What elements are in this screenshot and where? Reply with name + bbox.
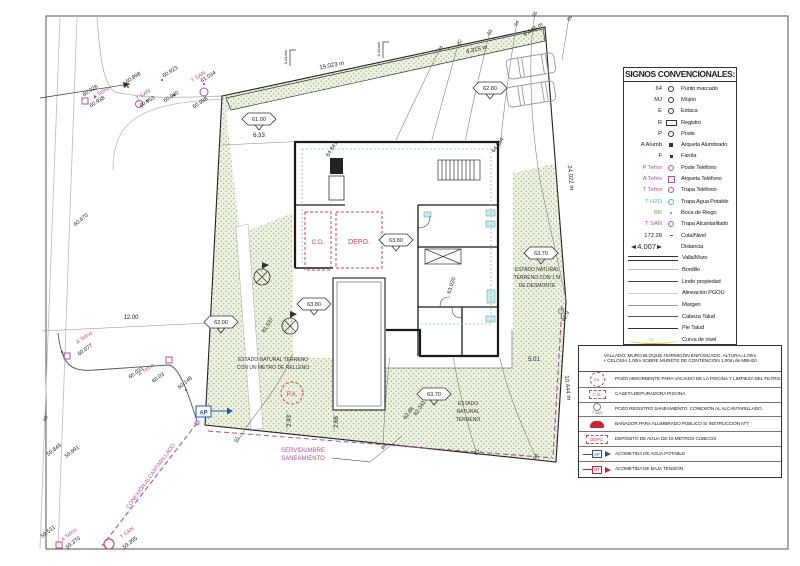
core-element	[330, 158, 343, 174]
notes-row: BAÑADOR PARA ALUMBRADO PÚBLICO S/ INSTRU…	[579, 417, 781, 432]
legend-row: P Tefno Poste Teléfono	[624, 162, 736, 173]
legend-row: BR Boca de Riego	[624, 207, 736, 218]
svg-text:CON UN METRO DE RELLENO: CON UN METRO DE RELLENO	[237, 365, 309, 371]
site-plan-sheet: { "legend": { "title": "SIGNOS CONVENCIO…	[0, 0, 800, 566]
svg-text:A Tefno: A Tefno	[137, 362, 155, 377]
arrow-right-icon	[657, 245, 662, 249]
svg-text:A Alumb: A Alumb	[376, 41, 381, 56]
legend-row: T H2O Trapa Agua Potable	[624, 196, 736, 207]
svg-text:10.444 m: 10.444 m	[563, 375, 572, 401]
svg-text:65: 65	[531, 10, 539, 18]
post-icon	[668, 131, 674, 137]
legend-row: 172.28 Cota/Nivel	[624, 230, 736, 241]
streetlight-icon	[670, 155, 673, 158]
core-outline	[329, 176, 344, 200]
water-supply-icon: AP	[583, 450, 612, 458]
svg-text:C.D.: C.D.	[312, 239, 325, 246]
svg-text:CONEXIÓN ALCANTARILLADO: CONEXIÓN ALCANTARILLADO	[125, 441, 178, 510]
slope-top-line-icon	[628, 316, 678, 317]
tsan-well-icon: T SAN	[592, 403, 602, 415]
svg-text:63.80: 63.80	[389, 238, 403, 244]
contour-line-icon: 53	[628, 336, 678, 344]
svg-text:60.898: 60.898	[125, 71, 142, 85]
svg-text:63.70: 63.70	[427, 392, 441, 398]
survey-dots	[61, 79, 205, 391]
building-footprint	[293, 140, 500, 358]
svg-text:64: 64	[513, 19, 521, 27]
pa-well-icon: P.A.	[590, 372, 605, 387]
svg-text:60: 60	[42, 415, 50, 422]
svg-text:62.00: 62.00	[214, 320, 228, 326]
svg-text:60.923: 60.923	[162, 65, 179, 79]
legend-row: E Estaca	[624, 106, 736, 117]
level-icon	[670, 235, 673, 236]
svg-text:ESTADO NATURAL TERRENO: ESTADO NATURAL TERRENO	[238, 357, 308, 363]
depo-box-icon: DEPO.	[586, 435, 608, 444]
notes-row: AP ACOMETIDA DE AGUA POTABLE	[579, 447, 781, 462]
svg-text:TERRENO CON 1 M: TERRENO CON 1 M	[514, 275, 561, 281]
legend-row: A Alumb Arqueta Alumbrado	[624, 139, 736, 150]
legend-line-row: Margen	[624, 299, 736, 311]
svg-text:60.670: 60.670	[73, 213, 90, 228]
svg-text:61: 61	[233, 435, 241, 443]
svg-text:ESTADO NATURAL: ESTADO NATURAL	[515, 267, 560, 273]
notes-row: C.D. CASETA DEPURADORA PISCINA	[579, 388, 781, 403]
margin-line-icon	[628, 305, 678, 306]
svg-text:SANEAMIENTO: SANEAMIENTO	[281, 456, 325, 462]
registro-icon	[666, 120, 677, 126]
svg-text:62.80: 62.80	[483, 86, 497, 92]
phone-manhole-icon	[668, 187, 674, 193]
legend-box: SIGNOS CONVENCIONALES: 64 Punto marcado …	[623, 67, 737, 345]
notes-row: BT ACOMETIDA DE BAJA TENSIÓN	[579, 462, 781, 477]
svg-text:DE DESMONTE: DE DESMONTE	[519, 283, 556, 289]
legend-line-row: Alineación PGOU	[624, 288, 736, 300]
phone-post-icon	[668, 165, 674, 171]
curb-line-icon	[628, 269, 678, 270]
legend-line-row: Bordillo	[624, 264, 736, 276]
svg-text:5.01: 5.01	[528, 357, 540, 363]
svg-text:2.43: 2.43	[287, 415, 293, 427]
curb-line	[58, 333, 197, 421]
notes-header: VALLADO: MURO BLOQUE HORMIGÓN ENFOSCADO.…	[579, 346, 781, 372]
hydrant-icon	[670, 212, 672, 214]
legend-row: F Farola	[624, 151, 736, 162]
svg-text:DEPO.: DEPO.	[348, 239, 370, 246]
svg-text:24.022 m: 24.022 m	[566, 165, 575, 191]
road-lines	[40, 16, 224, 549]
legend-row: 64 Punto marcado	[624, 83, 736, 94]
svg-text:SERVIDUMBRE: SERVIDUMBRE	[281, 448, 325, 454]
lighting-box-icon	[669, 143, 673, 147]
point-icon	[668, 86, 674, 92]
svg-text:ESTADO: ESTADO	[458, 401, 478, 407]
notes-row: T SAN POZO REGISTRO SANEAMIENTO. CONEXIÓ…	[579, 403, 781, 418]
power-supply-icon: BT	[583, 466, 611, 474]
svg-text:P.A.: P.A.	[287, 392, 298, 398]
notes-row: DEPO. DEPÓSITO DE AGUA DE 15 METROS CÚBI…	[579, 432, 781, 447]
legend-row: T Tefno Trapa Teléfono	[624, 185, 736, 196]
milestone-icon	[668, 97, 674, 103]
sewer-manhole-icon	[668, 221, 674, 227]
property-line-icon	[628, 281, 678, 282]
pool	[333, 278, 385, 410]
svg-text:60.03: 60.03	[151, 372, 166, 385]
legend-row: 4.007 Distancia	[624, 241, 736, 252]
stake-icon	[668, 108, 674, 114]
svg-text:59.531: 59.531	[40, 525, 57, 540]
svg-text:59.691: 59.691	[64, 445, 81, 460]
legend-line-row: Cabeza Talud	[624, 311, 736, 323]
svg-text:19.023 m: 19.023 m	[319, 61, 345, 72]
svg-text:A Alumb: A Alumb	[283, 49, 288, 64]
wall-line-icon	[628, 256, 678, 261]
legend-row: R Registro	[624, 117, 736, 128]
notes-box: VALLADO: MURO BLOQUE HORMIGÓN ENFOSCADO.…	[578, 345, 782, 478]
slope-bottom-line-icon	[628, 328, 678, 329]
svg-text:63: 63	[486, 28, 494, 36]
legend-row: T SAN Trapa Alcantarillado	[624, 219, 736, 230]
svg-text:63.80: 63.80	[307, 302, 321, 308]
water-manhole-icon	[668, 199, 674, 205]
svg-text:63.70: 63.70	[534, 251, 548, 257]
svg-text:60.998: 60.998	[192, 96, 209, 110]
svg-text:6.33: 6.33	[253, 133, 265, 139]
notes-row: P.A. POZO ABSORBENTE PARA VACIADO DE LA …	[579, 372, 781, 387]
alignment-line-icon	[628, 293, 678, 294]
svg-text:TERRENO: TERRENO	[456, 417, 481, 423]
svg-text:59.849: 59.849	[46, 443, 63, 458]
svg-text:2.66: 2.66	[334, 416, 340, 428]
ap-label: AP	[199, 411, 207, 417]
legend-line-row: Linde propiedad	[624, 276, 736, 288]
legend-row: P Poste	[624, 128, 736, 139]
legend-row: MJ Mojón	[624, 94, 736, 105]
bollard-light-icon	[590, 421, 604, 428]
phone-box-icon	[668, 176, 675, 183]
legend-line-row: Valla/Muro	[624, 252, 736, 264]
svg-text:12.00: 12.00	[123, 315, 139, 321]
legend-row: A Tefno Arqueta Teléfono	[624, 173, 736, 184]
cd-box-icon: C.D.	[589, 390, 606, 399]
svg-text:NATURAL: NATURAL	[457, 409, 480, 415]
arrow-left-icon	[631, 245, 636, 249]
svg-text:61.00: 61.00	[252, 117, 266, 123]
legend-title: SIGNOS CONVENCIONALES:	[623, 67, 737, 82]
service-annotations: SERVIDUMBRE SANEAMIENTO CONEXIÓN ALCANTA…	[125, 441, 325, 510]
legend-line-row: Pie Talud	[624, 323, 736, 335]
